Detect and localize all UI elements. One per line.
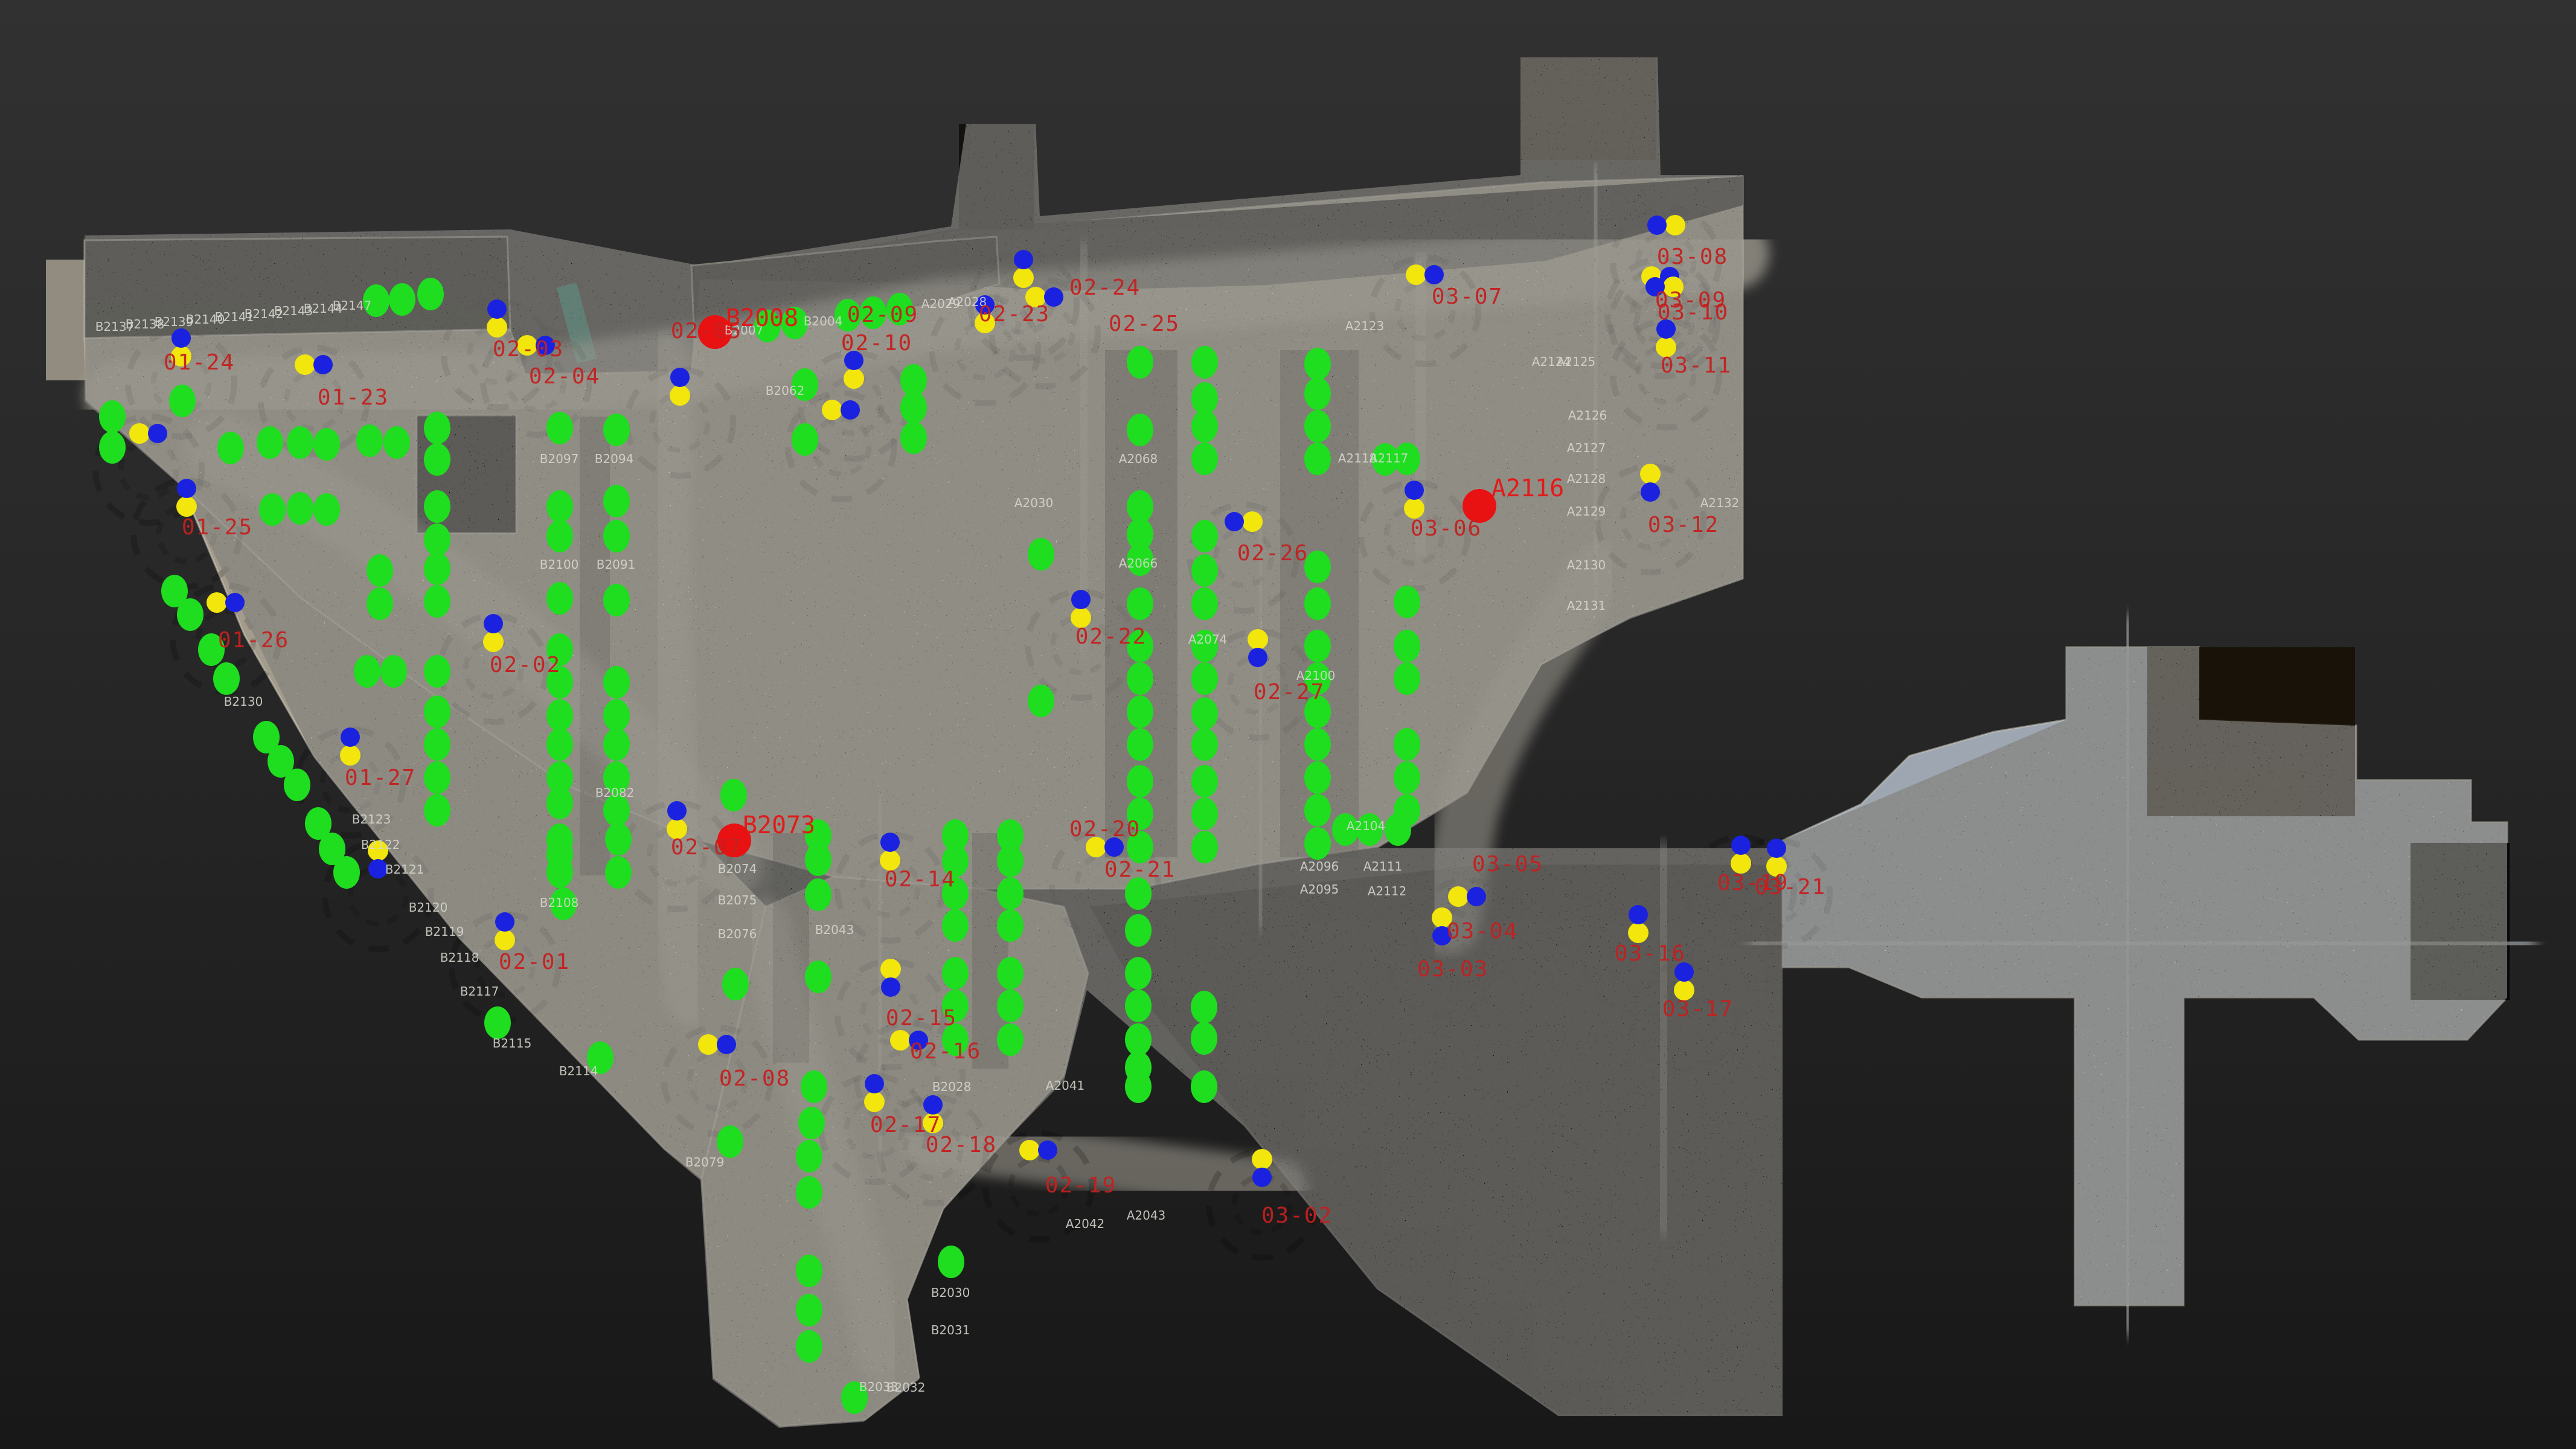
station-id-label: 03-04	[1447, 919, 1518, 944]
station-point-blue	[1641, 482, 1660, 502]
stall-number-label: B2121	[385, 862, 425, 877]
scan-point-completed[interactable]	[1191, 554, 1218, 587]
scan-point-completed[interactable]	[938, 1246, 964, 1278]
scan-point-completed[interactable]	[603, 728, 630, 761]
stall-number-label: B2074	[718, 862, 757, 876]
station-target-yellow	[295, 354, 315, 375]
station-id-label: 02-16	[910, 1039, 981, 1064]
scan-point-completed[interactable]	[1127, 346, 1153, 379]
station-point-blue	[1424, 265, 1444, 284]
scan-point-completed[interactable]	[997, 877, 1024, 910]
scan-point-completed[interactable]	[424, 655, 450, 688]
scan-point-completed[interactable]	[1028, 538, 1054, 571]
scan-point-completed[interactable]	[805, 843, 831, 876]
scan-point-completed[interactable]	[313, 493, 340, 526]
scan-point-completed[interactable]	[1304, 827, 1331, 860]
station-target-yellow	[1404, 498, 1424, 519]
scan-point-completed[interactable]	[942, 909, 969, 942]
stall-number-label: A2095	[1300, 882, 1339, 897]
stall-number-label: B2147	[333, 298, 372, 313]
scan-point-completed[interactable]	[997, 990, 1024, 1022]
station-id-label: 01-26	[218, 628, 289, 653]
scan-point-completed[interactable]	[484, 1006, 511, 1039]
scan-point-completed[interactable]	[603, 485, 630, 517]
station-target-yellow	[844, 368, 864, 389]
station-point-blue	[148, 424, 167, 443]
scan-point-completed[interactable]	[798, 1107, 825, 1139]
scan-point-completed[interactable]	[1125, 877, 1152, 910]
station-id-label: 01-25	[182, 515, 253, 540]
station-target-yellow	[1252, 1149, 1272, 1169]
scan-point-completed[interactable]	[1028, 685, 1054, 717]
stall-number-label: A2129	[1567, 504, 1606, 519]
station-point-blue	[881, 977, 900, 997]
station-point-blue	[1252, 1168, 1272, 1187]
scan-point-completed[interactable]	[796, 1176, 822, 1209]
scan-point-completed[interactable]	[1125, 957, 1152, 990]
scan-point-completed[interactable]	[900, 421, 927, 454]
stall-number-label: A2125	[1557, 354, 1596, 369]
stall-number-label: B2100	[540, 557, 579, 572]
stall-number-label: A2112	[1368, 884, 1407, 898]
scan-point-completed[interactable]	[424, 523, 450, 556]
stall-number-label: B2062	[766, 383, 805, 398]
scan-point-completed[interactable]	[1191, 443, 1218, 475]
stall-number-label: B2030	[931, 1285, 970, 1300]
station-id-label: 01-23	[318, 385, 389, 410]
scan-point-completed[interactable]	[383, 426, 410, 459]
scan-point-completed[interactable]	[546, 490, 573, 523]
station-target-yellow	[129, 423, 150, 444]
stall-number-label: B2115	[493, 1036, 532, 1051]
stall-number-label: A2117	[1370, 451, 1409, 465]
station-id-label: 02-01	[499, 950, 570, 974]
station-target-yellow	[1406, 264, 1426, 285]
station-id-label: 02-05	[671, 319, 742, 344]
scan-point-completed[interactable]	[603, 414, 630, 446]
stall-number-label: A2130	[1567, 558, 1606, 572]
station-id-label: 02-27	[1254, 680, 1325, 705]
station-target-yellow	[890, 1030, 911, 1051]
station-point-blue	[1647, 216, 1667, 235]
station-point-blue	[225, 593, 245, 612]
station-point-blue	[717, 1035, 736, 1054]
stall-number-label: A2111	[1363, 859, 1403, 874]
stall-number-label: B2117	[460, 984, 499, 999]
stall-number-label: B2079	[685, 1155, 725, 1169]
station-id-label: 03-21	[1755, 875, 1826, 900]
station-id-label: 02-19	[1045, 1173, 1117, 1198]
station-id-label: 02-09	[847, 302, 918, 327]
scan-point-completed[interactable]	[1304, 587, 1331, 620]
scan-point-completed[interactable]	[354, 655, 380, 688]
scan-point-completed[interactable]	[1191, 520, 1218, 552]
station-target-yellow	[340, 745, 360, 766]
station-point-blue	[923, 1095, 943, 1115]
station-point-blue	[1767, 839, 1786, 858]
scan-point-completed[interactable]	[424, 443, 450, 476]
scan-point-completed[interactable]	[259, 493, 286, 526]
scan-point-completed[interactable]	[796, 1330, 822, 1363]
scan-point-completed[interactable]	[546, 838, 573, 871]
scan-point-completed[interactable]	[720, 779, 747, 811]
scan-point-completed[interactable]	[900, 391, 927, 424]
scan-point-completed[interactable]	[313, 428, 340, 461]
station-target-yellow	[864, 1092, 885, 1112]
stall-number-label: A2042	[1066, 1217, 1105, 1231]
scan-point-completed[interactable]	[99, 431, 126, 464]
station-id-label: 03-10	[1658, 300, 1729, 325]
scan-point-completed[interactable]	[287, 426, 313, 459]
scan-point-completed[interactable]	[213, 662, 240, 695]
station-id-label: 03-16	[1615, 941, 1686, 966]
station-id-label: 02-15	[886, 1006, 957, 1031]
station-id-label: 03-12	[1648, 513, 1719, 537]
station-id-label: 03-08	[1657, 245, 1728, 269]
station-id-label: 02-18	[926, 1133, 997, 1157]
scan-point-completed[interactable]	[1125, 914, 1152, 947]
station-target-yellow	[670, 385, 690, 406]
scan-point-completed[interactable]	[1125, 990, 1152, 1022]
scan-point-completed[interactable]	[942, 957, 969, 990]
scan-point-completed[interactable]	[796, 1140, 822, 1172]
scan-point-completed[interactable]	[546, 787, 573, 819]
station-target-yellow	[1448, 886, 1469, 907]
scan-point-completed[interactable]	[1127, 728, 1153, 761]
scan-point-completed[interactable]	[1127, 696, 1153, 728]
scan-point-completed[interactable]	[1191, 728, 1218, 761]
stall-number-label: A2123	[1345, 319, 1385, 333]
station-target-yellow	[207, 592, 227, 613]
station-id-label: 02-21	[1104, 857, 1176, 882]
station-id-label: 02-22	[1075, 624, 1147, 649]
stall-number-label: A2132	[1700, 496, 1740, 510]
scan-point-completed[interactable]	[417, 278, 444, 310]
station-point-blue	[1467, 887, 1486, 906]
stall-number-label: A2128	[1567, 472, 1606, 486]
station-id-label: 03-07	[1432, 284, 1503, 309]
stall-number-label: A2066	[1119, 556, 1158, 571]
scan-point-completed[interactable]	[603, 584, 630, 616]
region-left-tip-block	[46, 260, 89, 380]
station-id-label: 03-02	[1261, 1203, 1333, 1228]
scan-point-completed[interactable]	[287, 492, 313, 525]
stall-number-label: B2119	[425, 924, 464, 939]
scan-point-completed[interactable]	[99, 400, 126, 433]
scan-point-completed[interactable]	[1385, 813, 1411, 846]
scan-point-completed[interactable]	[1394, 586, 1420, 618]
stall-number-label: A2131	[1567, 598, 1606, 613]
stall-number-label: A2126	[1568, 408, 1607, 423]
scan-point-completed[interactable]	[1191, 382, 1218, 415]
station-id-label: 03-11	[1661, 353, 1732, 378]
stall-number-label: A2104	[1347, 819, 1386, 833]
scan-point-completed[interactable]	[1304, 794, 1331, 827]
station-point-blue	[880, 833, 900, 852]
station-target-yellow	[1019, 1140, 1040, 1160]
scan-point-completed[interactable]	[424, 490, 450, 523]
stall-number-label: B2097	[540, 452, 579, 466]
scan-point-completed[interactable]	[1304, 348, 1331, 380]
scan-point-completed[interactable]	[1191, 1070, 1217, 1103]
scan-point-completed[interactable]	[997, 845, 1024, 877]
station-point-blue	[865, 1074, 884, 1093]
station-id-label: 01-27	[345, 766, 416, 790]
station-target-yellow	[487, 317, 507, 337]
station-id-label: 02-23	[979, 302, 1050, 327]
stall-number-label: B2076	[718, 927, 757, 941]
station-point-blue	[1225, 512, 1244, 531]
stall-number-label: A2074	[1188, 632, 1228, 647]
scan-point-completed[interactable]	[1191, 1022, 1217, 1055]
scan-point-completed[interactable]	[546, 699, 573, 732]
scan-point-completed[interactable]	[546, 728, 573, 761]
station-id-label: 03-06	[1411, 516, 1482, 541]
station-target-yellow	[483, 632, 504, 652]
scan-point-completed[interactable]	[1191, 765, 1218, 798]
station-point-blue	[177, 479, 196, 498]
station-point-blue	[484, 614, 503, 633]
stall-number-label: B2004	[804, 314, 843, 328]
scan-point-completed[interactable]	[389, 283, 415, 316]
station-id-label: 01-24	[164, 350, 235, 375]
stall-number-label: B2032	[886, 1380, 926, 1395]
station-id-label: 02-26	[1237, 541, 1309, 566]
station-id-label: 02-20	[1069, 817, 1141, 842]
scan-point-completed[interactable]	[1304, 410, 1331, 443]
scan-point-completed[interactable]	[722, 968, 749, 1000]
stall-number-label: B2130	[224, 694, 263, 709]
stall-number-label: B2082	[595, 785, 635, 800]
scan-point-completed[interactable]	[717, 1125, 743, 1158]
station-point-blue	[841, 400, 860, 420]
stall-number-label: A2068	[1119, 452, 1158, 466]
stall-number-label: B2043	[815, 923, 854, 937]
station-target-yellow	[1665, 215, 1685, 235]
scan-point-completed[interactable]	[424, 761, 450, 794]
scan-point-completed[interactable]	[805, 961, 831, 993]
stall-number-label: B2114	[559, 1064, 598, 1078]
station-point-blue	[1014, 250, 1033, 269]
scan-point-completed[interactable]	[333, 856, 360, 889]
scan-point-completed[interactable]	[796, 1255, 822, 1287]
station-point-blue	[341, 728, 360, 747]
station-id-label: 02-03	[493, 337, 564, 362]
scan-point-completed[interactable]	[1304, 761, 1331, 794]
scan-point-completed[interactable]	[801, 1070, 827, 1103]
scan-point-completed[interactable]	[603, 666, 630, 699]
scan-point-completed[interactable]	[997, 957, 1024, 990]
station-point-blue	[670, 368, 690, 387]
stall-number-label: A2127	[1567, 441, 1606, 455]
stall-number-label: B2123	[352, 812, 391, 827]
scan-point-completed[interactable]	[257, 426, 283, 459]
station-id-label: 02-02	[490, 653, 561, 677]
scan-point-completed[interactable]	[1127, 662, 1153, 695]
station-target-yellow	[1013, 267, 1034, 288]
scan-point-completed[interactable]	[380, 655, 407, 688]
scan-point-completed[interactable]	[1191, 410, 1218, 443]
scan-point-completed[interactable]	[1125, 1070, 1152, 1103]
station-target-yellow	[1248, 629, 1268, 650]
scan-point-completed[interactable]	[1191, 346, 1218, 379]
station-target-yellow	[1640, 464, 1661, 484]
station-target-yellow	[1242, 511, 1263, 532]
station-id-label: 03-17	[1662, 997, 1734, 1022]
stall-number-label: A2096	[1300, 859, 1339, 874]
stall-number-label: B2094	[595, 452, 634, 466]
scan-point-completed[interactable]	[169, 385, 196, 417]
scan-point-completed[interactable]	[1127, 765, 1153, 798]
scan-point-completed[interactable]	[1394, 761, 1420, 794]
stall-number-label: A2030	[1014, 496, 1054, 510]
scan-point-completed[interactable]	[603, 699, 630, 732]
station-point-blue	[313, 355, 333, 374]
scan-point-completed[interactable]	[424, 552, 450, 585]
scan-point-completed[interactable]	[546, 520, 573, 552]
station-target-yellow	[822, 400, 842, 420]
scan-point-completed[interactable]	[546, 582, 573, 615]
stall-number-label: A2043	[1127, 1208, 1166, 1223]
station-id-label: 02-24	[1069, 275, 1141, 300]
station-target-yellow	[176, 496, 197, 517]
station-id-label: 03-05	[1472, 852, 1543, 877]
scan-point-completed[interactable]	[1127, 490, 1153, 523]
station-point-blue	[1405, 481, 1424, 500]
scan-point-completed[interactable]	[424, 728, 450, 761]
station-target-yellow	[698, 1034, 719, 1055]
viewer-stage: B2137B2138B2139B2140B2141B2142B2143B2144…	[0, 0, 2576, 1449]
stall-number-label: B2091	[597, 557, 636, 572]
scan-point-completed[interactable]	[1125, 1023, 1152, 1056]
scan-point-completed[interactable]	[1304, 443, 1331, 475]
scan-point-completed[interactable]	[177, 598, 203, 631]
station-id-label: 02-14	[885, 867, 956, 892]
scan-point-completed[interactable]	[1394, 662, 1420, 695]
flagged-stall-label: A2116	[1491, 475, 1564, 502]
scan-point-completed[interactable]	[605, 823, 632, 856]
scan-point-completed[interactable]	[792, 423, 818, 456]
point-cloud-map-canvas[interactable]: B2137B2138B2139B2140B2141B2142B2143B2144…	[0, 0, 2576, 1449]
station-id-label: 02-04	[529, 364, 600, 389]
station-point-blue	[1629, 905, 1648, 924]
scan-point-completed[interactable]	[1191, 991, 1217, 1023]
scan-point-completed[interactable]	[367, 587, 393, 620]
stall-number-label: B2075	[718, 893, 757, 907]
station-point-blue	[1071, 590, 1091, 609]
scan-point-completed[interactable]	[1127, 414, 1153, 446]
station-target-yellow	[1628, 923, 1648, 943]
stall-number-label: B2031	[931, 1323, 970, 1337]
station-point-blue	[1038, 1140, 1057, 1160]
station-point-blue	[495, 912, 514, 932]
station-point-blue	[1731, 836, 1751, 855]
scan-point-completed[interactable]	[424, 696, 450, 728]
scan-point-completed[interactable]	[1191, 662, 1218, 695]
scan-point-completed[interactable]	[284, 769, 310, 801]
scan-point-completed[interactable]	[1127, 587, 1153, 620]
station-id-label: 02-10	[841, 331, 912, 356]
station-target-yellow	[495, 930, 515, 950]
flagged-stall-label: B2073	[743, 811, 815, 839]
scan-point-completed[interactable]	[1304, 630, 1331, 662]
stall-number-label: B2028	[932, 1080, 972, 1094]
station-target-yellow	[880, 959, 901, 979]
station-point-blue	[1248, 648, 1267, 667]
station-id-label: 02-07	[671, 835, 742, 860]
stall-number-label: B2122	[361, 837, 400, 852]
scan-point-completed[interactable]	[367, 554, 393, 587]
scan-point-completed[interactable]	[546, 412, 573, 444]
scan-point-completed[interactable]	[1394, 728, 1420, 761]
scan-point-completed[interactable]	[424, 412, 450, 444]
scan-point-completed[interactable]	[796, 1294, 822, 1326]
stall-number-label: B2118	[440, 950, 479, 965]
stall-number-label: B2108	[540, 895, 579, 910]
station-id-label: 02-25	[1109, 312, 1180, 336]
scan-point-completed[interactable]	[1191, 587, 1218, 620]
station-point-blue	[667, 801, 687, 820]
scan-point-completed[interactable]	[1304, 377, 1331, 410]
scan-point-completed[interactable]	[1394, 630, 1420, 662]
scan-point-completed[interactable]	[424, 794, 450, 827]
station-point-blue	[487, 299, 507, 319]
stall-number-label: B2120	[409, 900, 448, 915]
scan-point-completed[interactable]	[1191, 798, 1218, 830]
scan-point-completed[interactable]	[603, 520, 630, 552]
station-point-blue	[171, 328, 191, 348]
scan-point-completed[interactable]	[1191, 831, 1218, 863]
scan-point-completed[interactable]	[805, 878, 831, 911]
scan-point-completed[interactable]	[424, 585, 450, 618]
scan-point-completed[interactable]	[1304, 728, 1331, 761]
station-id-label: 02-08	[719, 1066, 790, 1091]
scan-point-completed[interactable]	[605, 856, 632, 889]
scan-point-completed[interactable]	[356, 424, 383, 457]
stall-number-label: A2041	[1046, 1078, 1085, 1093]
scan-point-completed[interactable]	[1191, 697, 1218, 730]
station-id-label: 03-03	[1417, 957, 1488, 982]
scan-point-completed[interactable]	[997, 909, 1024, 942]
scan-point-completed[interactable]	[217, 432, 244, 464]
scan-point-completed[interactable]	[997, 1023, 1024, 1056]
